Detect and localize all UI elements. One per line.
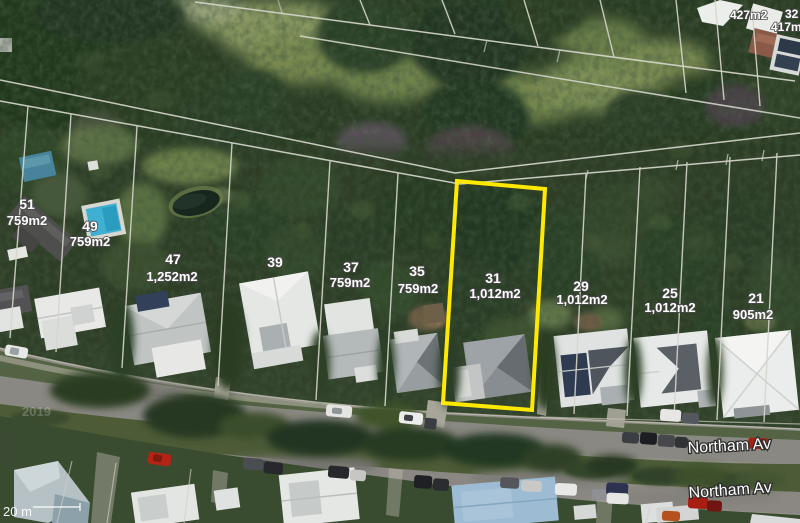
svg-text:31: 31: [485, 270, 501, 286]
svg-text:1,012m2: 1,012m2: [469, 286, 520, 301]
svg-text:20 m: 20 m: [3, 504, 32, 519]
svg-text:35: 35: [409, 263, 425, 279]
svg-text:37: 37: [343, 259, 359, 275]
svg-text:39: 39: [267, 254, 283, 270]
svg-text:2019: 2019: [22, 404, 51, 419]
svg-text:759m2: 759m2: [7, 213, 47, 228]
svg-text:759m2: 759m2: [398, 281, 438, 296]
svg-text:47: 47: [165, 251, 181, 267]
svg-text:32: 32: [785, 7, 799, 21]
svg-text:21: 21: [748, 290, 764, 306]
svg-text:1,252m2: 1,252m2: [146, 269, 197, 284]
svg-text:49: 49: [82, 218, 98, 234]
svg-text:1,012m2: 1,012m2: [644, 300, 695, 315]
svg-text:25: 25: [662, 285, 678, 301]
svg-text:417m2: 417m2: [771, 20, 800, 34]
svg-text:1,012m2: 1,012m2: [556, 292, 607, 307]
svg-text:905m2: 905m2: [733, 307, 773, 322]
svg-text:759m2: 759m2: [330, 275, 370, 290]
svg-text:51: 51: [19, 196, 35, 212]
svg-text:427m2: 427m2: [730, 8, 768, 22]
svg-text:759m2: 759m2: [70, 234, 110, 249]
